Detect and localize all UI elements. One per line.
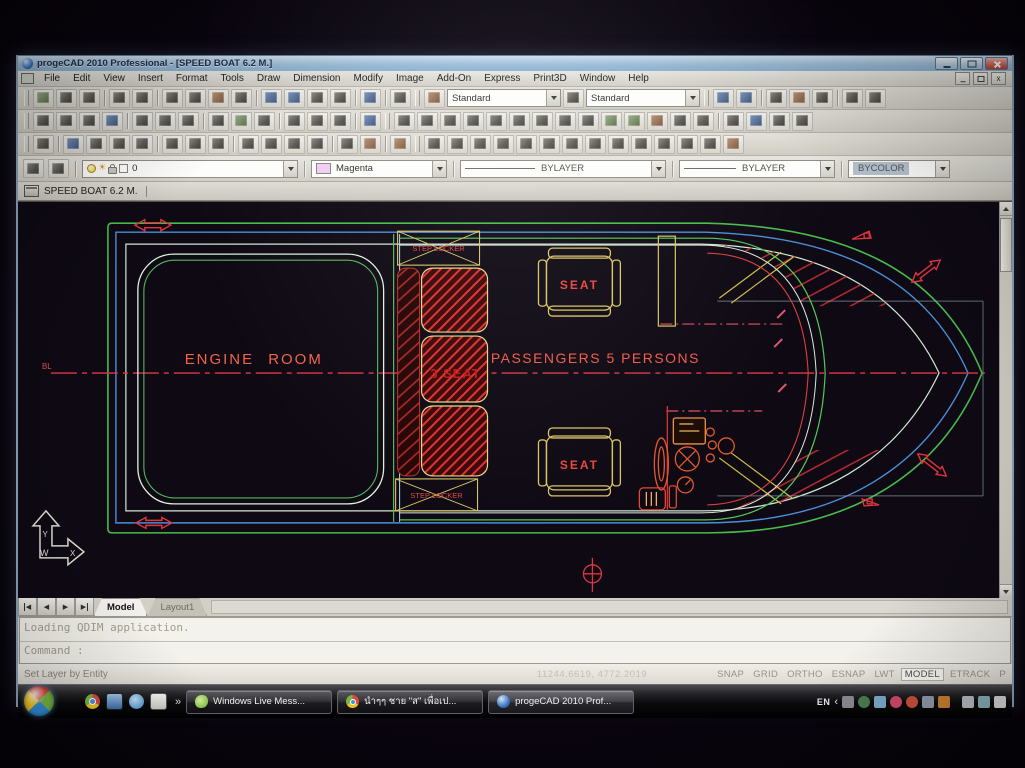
toolbar-button[interactable]	[178, 112, 199, 131]
drawing-canvas-area: BL ENGINE ROOM STEP LOCKER STEP LOCKER	[18, 201, 1012, 598]
baseline-label: BL	[42, 362, 52, 371]
toggle-grid[interactable]: GRID	[753, 669, 778, 680]
toggle-polar[interactable]: P	[999, 669, 1006, 680]
maximize-button[interactable]	[960, 57, 983, 70]
tray-chevron-icon[interactable]: ‹	[834, 696, 838, 708]
toolbar-button[interactable]	[842, 89, 863, 108]
hatch-icon[interactable]	[723, 112, 744, 131]
scrollbar-thumb[interactable]	[1000, 218, 1012, 272]
toolbar-button[interactable]	[670, 112, 691, 131]
walkway-ticks	[774, 310, 786, 392]
match-properties-icon[interactable]	[231, 89, 252, 108]
engine-room-inner	[144, 260, 378, 498]
properties-icon[interactable]	[360, 89, 381, 108]
print-preview-icon[interactable]	[132, 89, 153, 108]
linetype-value: BYLAYER	[541, 163, 584, 174]
toolbar-button[interactable]	[700, 135, 721, 154]
messenger-icon	[195, 695, 208, 708]
steering-wheel	[654, 438, 668, 490]
chrome-icon	[346, 695, 359, 708]
tray-icon[interactable]	[890, 696, 902, 708]
tray-icon[interactable]	[842, 696, 854, 708]
toolbar-button[interactable]	[562, 135, 583, 154]
combo-arrow-icon[interactable]	[685, 90, 699, 106]
toolbar-grip[interactable]	[704, 90, 709, 106]
document-quicklaunch-icon[interactable]	[150, 693, 167, 710]
toolbar-grip[interactable]	[385, 113, 390, 129]
lineweight-sample	[684, 168, 736, 169]
menu-view[interactable]: View	[97, 72, 131, 85]
command-window[interactable]: Loading QDIM application. Command :	[19, 617, 1011, 664]
windows-taskbar: » Windows Live Mess... นำๆๆ ชาย "ส" เพื่…	[18, 684, 1012, 718]
toolbar-button[interactable]	[470, 135, 491, 154]
toolbar-button[interactable]	[360, 112, 381, 131]
toolbar-button[interactable]	[766, 89, 787, 108]
toolbar-button[interactable]	[284, 112, 305, 131]
color-swatch-magenta	[316, 163, 331, 174]
menu-print3d[interactable]: Print3D	[527, 72, 572, 85]
open-icon[interactable]	[56, 89, 77, 108]
toolbar-button[interactable]	[608, 135, 629, 154]
tab-last-icon[interactable]: ▶	[75, 598, 94, 616]
ellipse-icon[interactable]	[532, 112, 553, 131]
gauge-small	[677, 477, 693, 493]
chamfer-icon[interactable]	[360, 135, 381, 154]
text-style-value: Standard	[452, 93, 491, 104]
ucs-y-label: Y	[42, 530, 48, 539]
combo-arrow-icon[interactable]	[651, 161, 665, 177]
text-style-icon[interactable]	[424, 89, 445, 108]
coordinate-readout: 11244.6619, 4772.2019	[537, 669, 647, 680]
taskbar-button-browser[interactable]: นำๆๆ ชาย "ส" เพื่อเป...	[337, 690, 483, 714]
text-icon[interactable]	[792, 112, 813, 131]
step-locker-bottom-label: STEP LOCKER	[410, 491, 463, 500]
toolbar-button[interactable]	[812, 89, 833, 108]
toolbar-button[interactable]	[555, 112, 576, 131]
mdi-close-button[interactable]: x	[991, 72, 1006, 85]
arc-icon[interactable]	[440, 112, 461, 131]
rectangle-icon[interactable]	[486, 112, 507, 131]
toolbar-button[interactable]	[208, 112, 229, 131]
entity-properties-toolbar: ☀ 0 Magenta BYLAYER BYLAYER BYCOLOR	[18, 156, 1012, 182]
tray-icon[interactable]	[906, 696, 918, 708]
toolbar-grip[interactable]	[24, 113, 29, 129]
cad-viewport[interactable]: BL ENGINE ROOM STEP LOCKER STEP LOCKER	[18, 202, 999, 598]
tray-icon[interactable]	[858, 696, 870, 708]
explode-icon[interactable]	[516, 135, 537, 154]
menu-draw[interactable]: Draw	[251, 72, 286, 85]
toolbar-button[interactable]	[647, 112, 668, 131]
toolbar-button[interactable]	[33, 135, 54, 154]
layer-previous-icon[interactable]	[48, 159, 69, 178]
system-tray: EN ‹	[817, 696, 1006, 708]
polyline-icon[interactable]	[417, 112, 438, 131]
trim-icon[interactable]	[284, 135, 305, 154]
toolbar-button[interactable]	[631, 135, 652, 154]
toolbar-button[interactable]	[713, 89, 734, 108]
layer-name: 0	[132, 163, 137, 174]
flow-arrow-bow-lower	[915, 450, 949, 480]
toolbar-button[interactable]	[789, 89, 810, 108]
tab-prev-icon[interactable]: ◀	[37, 598, 56, 616]
rotate-icon[interactable]	[208, 135, 229, 154]
layer-on-icon[interactable]	[87, 164, 96, 173]
toolbar-button[interactable]	[56, 112, 77, 131]
three-seat-label: 3 SEAT	[430, 366, 480, 381]
toolbar-button[interactable]	[254, 112, 275, 131]
dim-style-icon[interactable]	[563, 89, 584, 108]
layout-tab-bar: ◀ ◀ ▶ ▶ Model Layout1	[18, 598, 1012, 617]
break-icon[interactable]	[337, 135, 358, 154]
linetype-sample	[465, 168, 535, 169]
flow-arrow-top-left	[135, 220, 171, 231]
toggle-model[interactable]: MODEL	[901, 668, 944, 681]
toggle-ortho[interactable]: ORTHO	[787, 669, 823, 680]
pan-icon[interactable]	[307, 89, 328, 108]
toolbar-grip[interactable]	[415, 136, 420, 152]
window-title: progeCAD 2010 Professional - [SPEED BOAT…	[37, 58, 272, 69]
scroll-down-icon[interactable]	[1000, 584, 1012, 598]
toggle-lwt[interactable]: LWT	[874, 669, 894, 680]
bow-marker-top	[852, 231, 871, 239]
ucs-x-label: X	[70, 549, 76, 558]
toolbar-grip[interactable]	[415, 90, 420, 106]
stretch-icon[interactable]	[261, 135, 282, 154]
horizontal-scrollbar[interactable]	[211, 600, 1008, 614]
engine-room-label: ENGINE ROOM	[185, 351, 323, 368]
toolbar-grip[interactable]	[24, 90, 29, 106]
bench-side-hatch	[398, 268, 420, 476]
toolbar-button[interactable]	[493, 135, 514, 154]
ucs-icon: W Y X	[33, 511, 84, 565]
layer-combo[interactable]: ☀ 0	[82, 160, 298, 178]
combo-arrow-icon[interactable]	[546, 90, 560, 106]
menu-help[interactable]: Help	[622, 72, 655, 85]
lineweight-value: BYLAYER	[742, 163, 785, 174]
move-icon[interactable]	[185, 135, 206, 154]
spline-icon[interactable]	[578, 112, 599, 131]
mdi-restore-button[interactable]	[973, 72, 988, 85]
undo-icon[interactable]	[261, 89, 282, 108]
tray-icon[interactable]	[922, 696, 934, 708]
progecad-window: progeCAD 2010 Professional - [SPEED BOAT…	[16, 55, 1014, 707]
redo-icon[interactable]	[284, 89, 305, 108]
combo-arrow-icon[interactable]	[820, 161, 834, 177]
command-prompt[interactable]: Command :	[20, 642, 1010, 663]
tray-icon[interactable]	[962, 696, 974, 708]
menu-dimension[interactable]: Dimension	[287, 72, 346, 85]
section-symbol	[583, 558, 601, 592]
menu-modify[interactable]: Modify	[348, 72, 389, 85]
passengers-label: PASSENGERS 5 PERSONS	[491, 350, 700, 366]
vertical-scrollbar[interactable]	[999, 202, 1012, 598]
menu-image[interactable]: Image	[390, 72, 430, 85]
seat-bottom-label: SEAT	[560, 458, 599, 472]
ucs-w-label: W	[40, 548, 49, 558]
menu-addon[interactable]: Add-On	[431, 72, 477, 85]
windshield-rect	[658, 236, 675, 326]
step-locker-bottom: STEP LOCKER	[396, 479, 478, 511]
tray-icon[interactable]	[874, 696, 886, 708]
new-icon[interactable]	[33, 89, 54, 108]
save-icon[interactable]	[79, 89, 100, 108]
bow-hatch-yellow	[719, 458, 781, 504]
progecad-app-icon	[22, 58, 33, 69]
tab-first-icon[interactable]: ◀	[18, 598, 37, 616]
drawing-title: SPEED BOAT 6.2 M.	[44, 186, 147, 197]
linetype-combo[interactable]: BYLAYER	[460, 160, 666, 178]
toolbar-button[interactable]	[307, 112, 328, 131]
color-combo[interactable]: Magenta	[311, 160, 447, 178]
menu-format[interactable]: Format	[170, 72, 214, 85]
modify-toolbar	[18, 133, 1012, 156]
toolbar-button[interactable]	[132, 112, 153, 131]
quicklaunch-overflow-icon[interactable]: »	[175, 696, 181, 708]
cut-icon[interactable]	[162, 89, 183, 108]
line-icon[interactable]	[394, 112, 415, 131]
menu-tools[interactable]: Tools	[215, 72, 250, 85]
extend-icon[interactable]	[307, 135, 328, 154]
toolbar-button[interactable]	[865, 89, 886, 108]
copy-object-icon[interactable]	[86, 135, 107, 154]
language-indicator[interactable]: EN	[817, 697, 831, 707]
dim-style-combo[interactable]: Standard	[586, 89, 700, 107]
color-name: Magenta	[336, 163, 373, 174]
plot-style-combo[interactable]: BYCOLOR	[848, 160, 950, 178]
toolbar-button[interactable]	[677, 135, 698, 154]
lineweight-combo[interactable]: BYLAYER	[679, 160, 835, 178]
bow-marker-bottom	[862, 499, 879, 506]
erase-icon[interactable]	[63, 135, 84, 154]
text-style-combo[interactable]: Standard	[447, 89, 561, 107]
mdi-minimize-button[interactable]	[955, 72, 970, 85]
minimize-button[interactable]	[935, 57, 958, 70]
toggle-snap[interactable]: SNAP	[717, 669, 744, 680]
combo-arrow-icon[interactable]	[432, 161, 446, 177]
photo-of-monitor: progeCAD 2010 Professional - [SPEED BOAT…	[0, 0, 1025, 768]
zoom-icon[interactable]	[330, 89, 351, 108]
show-desktop-icon[interactable]	[106, 693, 123, 710]
toggle-esnap[interactable]: ESNAP	[832, 669, 866, 680]
copy-icon[interactable]	[185, 89, 206, 108]
region-icon[interactable]	[746, 112, 767, 131]
toggle-etrack[interactable]: ETRACK	[950, 669, 990, 680]
gauge-right	[718, 438, 734, 454]
toolbar-button[interactable]	[654, 135, 675, 154]
tray-icon[interactable]	[978, 696, 990, 708]
toolbar-button[interactable]	[424, 135, 445, 154]
toolbar-button[interactable]	[33, 112, 54, 131]
menu-insert[interactable]: Insert	[132, 72, 169, 85]
command-history: Loading QDIM application.	[20, 618, 1010, 642]
plot-style-value: BYCOLOR	[853, 162, 909, 175]
toolbar-button[interactable]	[736, 89, 757, 108]
menu-window[interactable]: Window	[574, 72, 622, 85]
drawing-file-icon	[24, 185, 39, 197]
volume-icon[interactable]	[994, 696, 1006, 708]
step-locker-top-label: STEP LOCKER	[412, 244, 465, 253]
start-button[interactable]	[24, 686, 54, 716]
tab-next-icon[interactable]: ▶	[56, 598, 75, 616]
toolbar-button[interactable]	[539, 135, 560, 154]
toolbar-button[interactable]	[624, 112, 645, 131]
dim-style-value: Standard	[591, 93, 630, 104]
combo-arrow-icon[interactable]	[935, 161, 949, 177]
point-icon[interactable]	[693, 112, 714, 131]
offset-icon[interactable]	[132, 135, 153, 154]
toolbar-button[interactable]	[585, 135, 606, 154]
taskbar-button-progecad[interactable]: progeCAD 2010 Prof...	[488, 690, 634, 714]
step-locker-top: STEP LOCKER	[398, 231, 480, 265]
layer-color-swatch	[119, 164, 128, 173]
status-bar: Set Layer by Entity 11244.6619, 4772.201…	[18, 664, 1012, 684]
inquiry-draw-toolbar	[18, 110, 1012, 133]
drawing-title-bar[interactable]: SPEED BOAT 6.2 M.	[18, 182, 1012, 201]
standard-toolbar: Standard Standard	[18, 87, 1012, 110]
circle-icon[interactable]	[463, 112, 484, 131]
tab-model[interactable]: Model	[94, 598, 147, 616]
taskbar-button-messenger[interactable]: Windows Live Mess...	[186, 690, 332, 714]
toolbar-button[interactable]	[79, 112, 100, 131]
tab-layout1[interactable]: Layout1	[147, 598, 207, 616]
close-button[interactable]	[985, 57, 1008, 70]
menu-express[interactable]: Express	[478, 72, 526, 85]
toolbar-button[interactable]	[231, 112, 252, 131]
status-message: Set Layer by Entity	[24, 669, 108, 680]
toolbar-button[interactable]	[447, 135, 468, 154]
engine-room-outer	[138, 254, 384, 504]
progecad-icon	[497, 695, 510, 708]
menu-bar: File Edit View Insert Format Tools Draw …	[18, 71, 1012, 87]
menu-file[interactable]: File	[38, 72, 66, 85]
bow-deck-hatch	[705, 244, 939, 511]
toolbar-button[interactable]	[102, 112, 123, 131]
toolbar-button[interactable]	[723, 135, 744, 154]
tray-icon[interactable]	[938, 696, 950, 708]
layers-dialog-icon[interactable]	[23, 159, 44, 178]
seat-top-label: SEAT	[560, 278, 599, 292]
toolbar-grip[interactable]	[24, 136, 29, 152]
toolbar-button[interactable]	[509, 112, 530, 131]
combo-arrow-icon[interactable]	[283, 161, 297, 177]
toolbar-button[interactable]	[155, 112, 176, 131]
layer-freeze-icon[interactable]: ☀	[98, 164, 106, 173]
flow-arrow-bow-upper	[909, 256, 943, 286]
print-icon[interactable]	[109, 89, 130, 108]
array-icon[interactable]	[162, 135, 183, 154]
document-icon	[21, 73, 34, 84]
mirror-icon[interactable]	[109, 135, 130, 154]
layer-lock-icon[interactable]	[108, 167, 117, 174]
fillet-icon[interactable]	[390, 135, 411, 154]
title-bar[interactable]: progeCAD 2010 Professional - [SPEED BOAT…	[18, 55, 1012, 71]
paste-icon[interactable]	[208, 89, 229, 108]
help-icon[interactable]	[390, 89, 411, 108]
hull-outline-outer	[108, 223, 982, 533]
chrome-quicklaunch-icon[interactable]	[85, 694, 100, 709]
toolbar-button[interactable]	[330, 112, 351, 131]
toolbar-button[interactable]	[601, 112, 622, 131]
menu-edit[interactable]: Edit	[67, 72, 96, 85]
battery-box	[639, 488, 665, 510]
internet-explorer-icon[interactable]	[129, 694, 144, 709]
toolbar-button[interactable]	[769, 112, 790, 131]
scroll-up-icon[interactable]	[1000, 202, 1012, 216]
scale-icon[interactable]	[238, 135, 259, 154]
